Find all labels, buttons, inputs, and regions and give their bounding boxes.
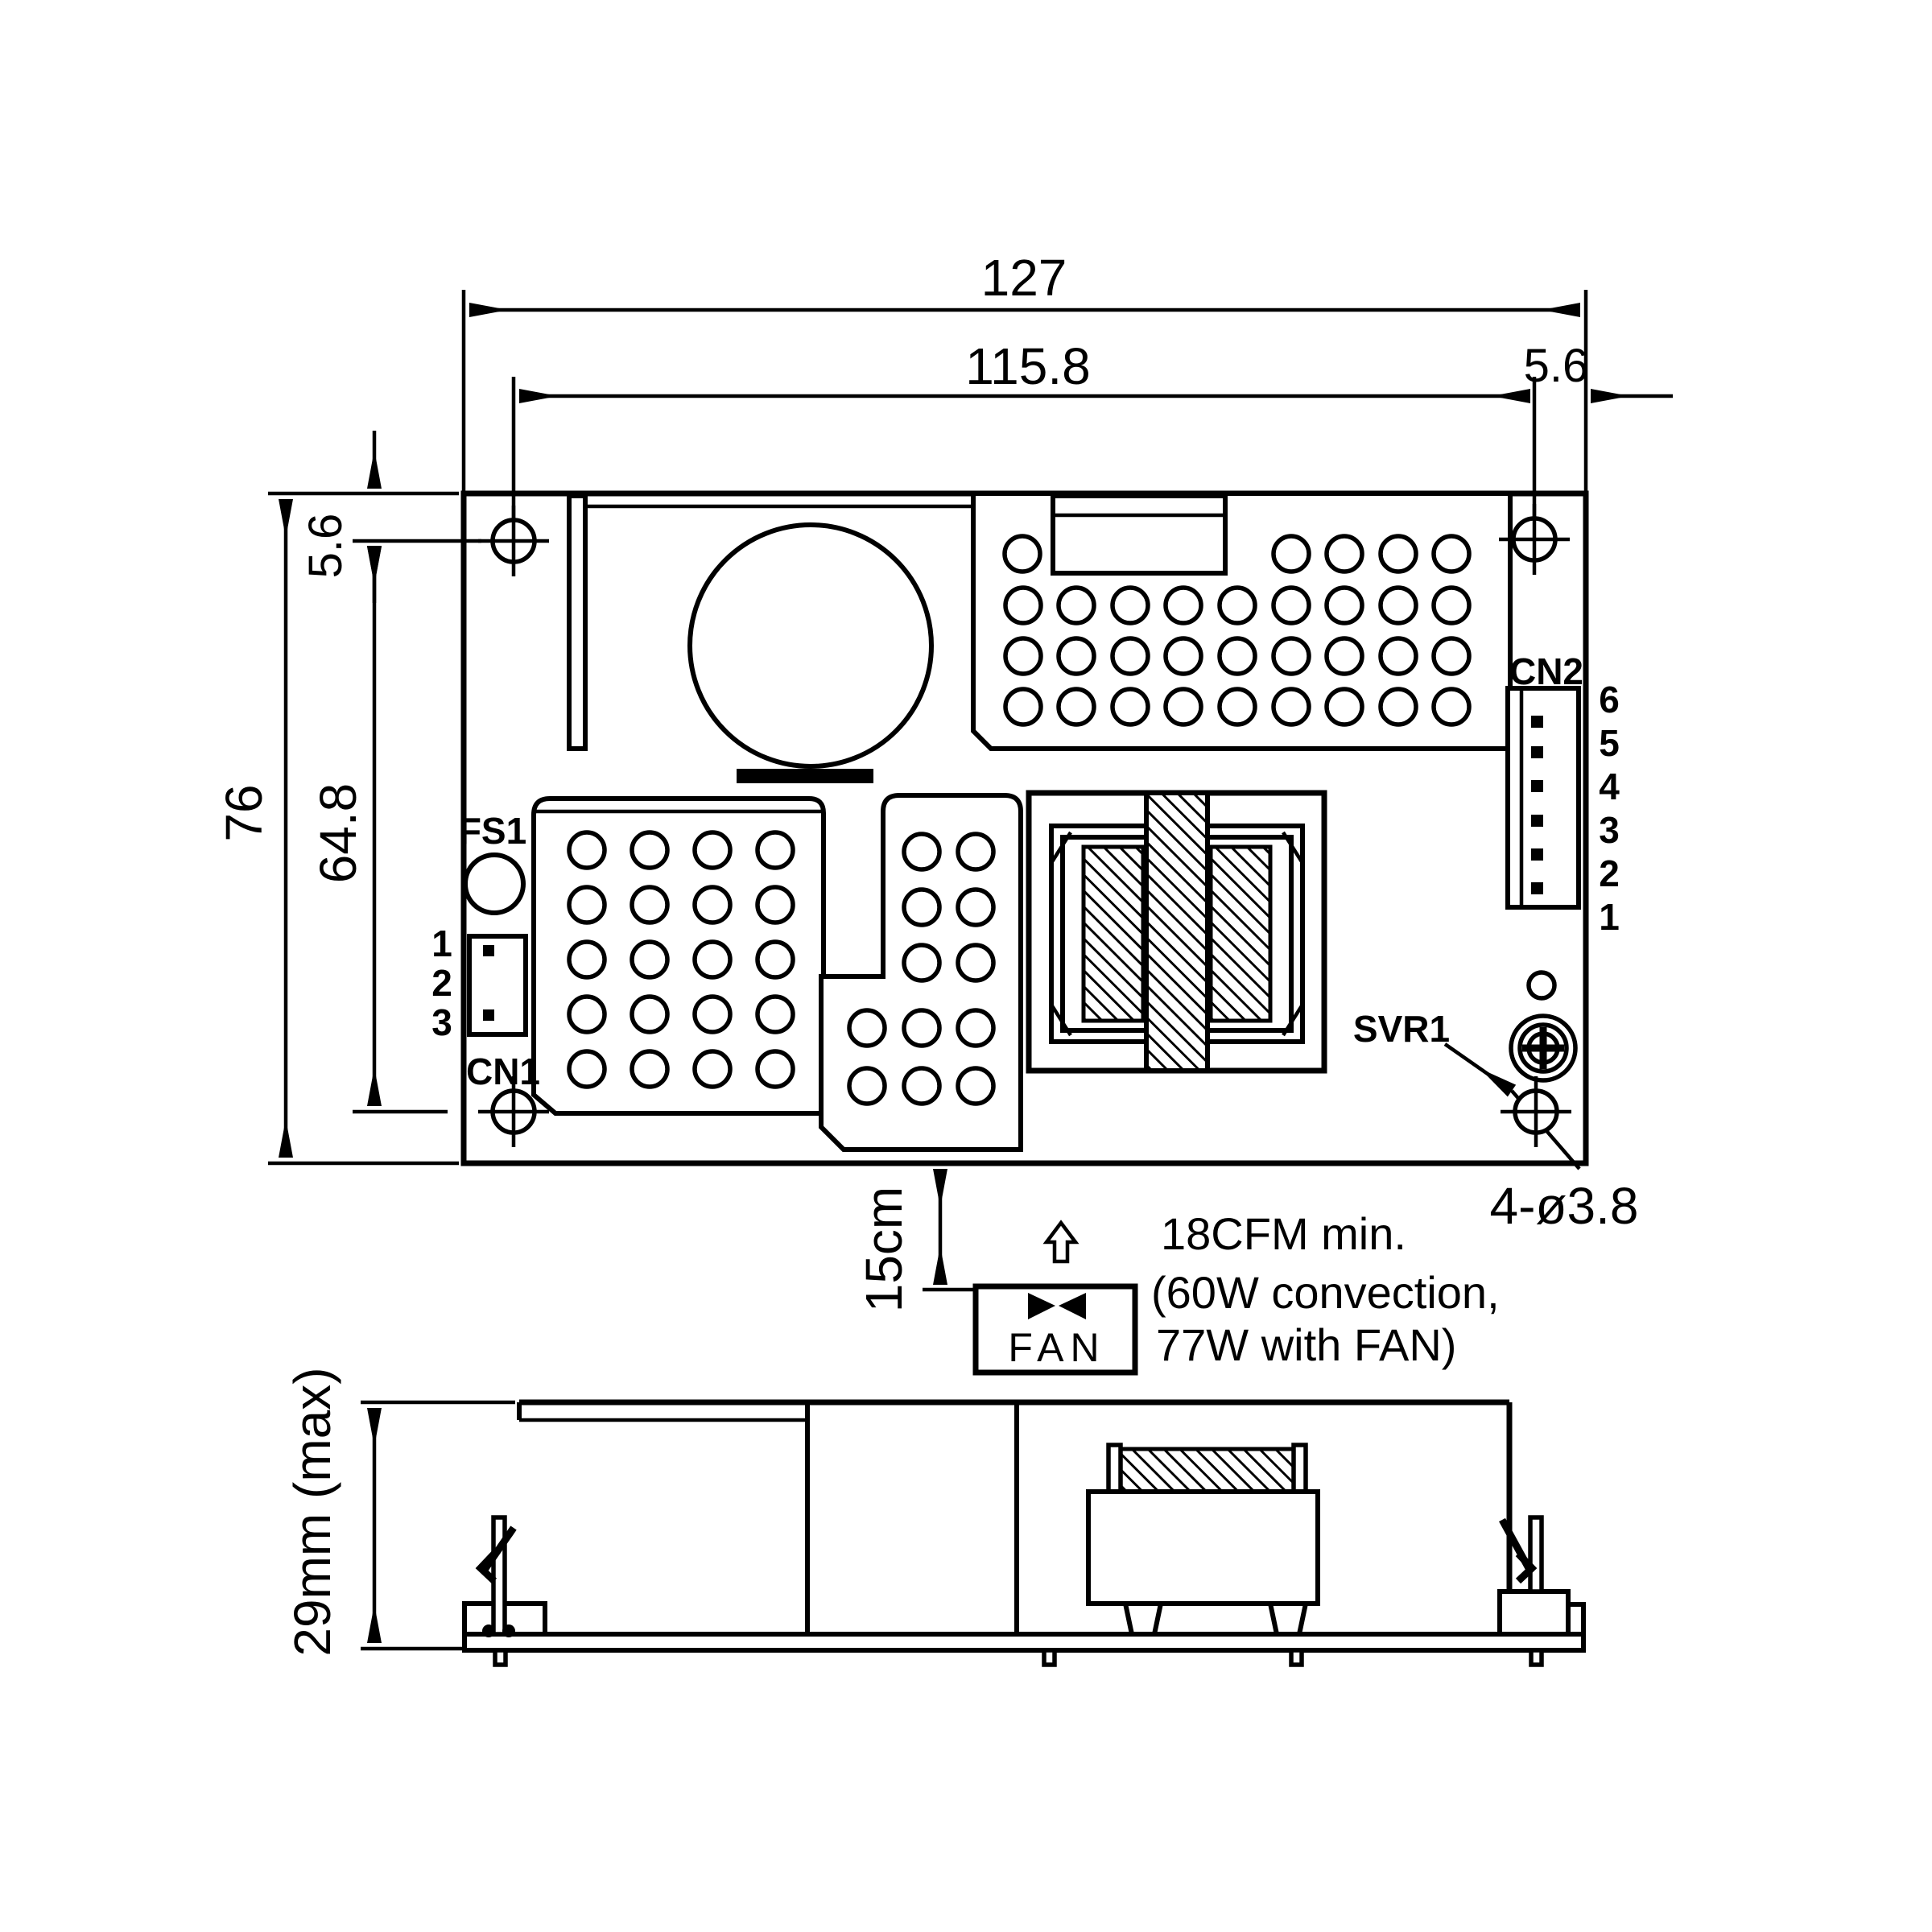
cn1-pin-number-3: 3 [431, 1001, 452, 1043]
heatsink-hole [958, 834, 993, 869]
chassis-clip-right [1500, 1517, 1583, 1634]
heatsink-hole [1220, 689, 1255, 724]
heatsink-hole [1434, 638, 1469, 674]
heatsink-hole [904, 945, 939, 980]
heatsink-hole [1274, 588, 1309, 623]
fuse-label: FS1 [459, 810, 526, 852]
heatsink-hole [1274, 536, 1309, 572]
airflow-note-line1: 18CFM min. [1161, 1208, 1406, 1259]
heatsink-hole [1005, 588, 1041, 623]
heatsink-hole [1166, 638, 1201, 674]
dimension-drawing: FS1 CN1 1 2 3 CN2 6 5 4 3 2 1 [0, 0, 1932, 1932]
transformer-side-view [1088, 1445, 1318, 1634]
heatsink-hole [904, 1068, 939, 1104]
heatsink-hole [1059, 689, 1094, 724]
heatsink-hole [1005, 689, 1041, 724]
heatsink-hole [958, 1068, 993, 1104]
airflow-note-line2: (60W convection, [1151, 1267, 1500, 1318]
dim-hole-pitch-x: 115.8 [965, 337, 1090, 395]
heatsink-hole [632, 887, 667, 923]
heatsink-hole [1327, 588, 1362, 623]
dim-edge-offset-top: 5.6 [299, 514, 352, 579]
fan-note: 15cm FAN 18CFM min. (60W convection, 77W… [855, 1169, 1500, 1373]
transformer-top-view [1029, 793, 1324, 1071]
cn1-pin1-square [483, 945, 494, 956]
heatsink-hole [1113, 638, 1148, 674]
heatsink-hole [569, 887, 605, 923]
capacitor-solder-bar [737, 769, 873, 783]
heatsink-hole [569, 997, 605, 1032]
cn2-pin-number-5: 5 [1599, 722, 1620, 764]
cn2-pin-number-2: 2 [1599, 852, 1620, 894]
heatsink-hole [849, 1010, 885, 1046]
top-view: FS1 CN1 1 2 3 CN2 6 5 4 3 2 1 [431, 493, 1620, 1169]
transformer-winding-right [1211, 847, 1270, 1021]
transformer-coil-side [1121, 1449, 1294, 1492]
cn2-pin-number-4: 4 [1599, 766, 1620, 807]
cn1-pin-number-1: 1 [431, 923, 452, 964]
heatsink-hole [1166, 588, 1201, 623]
heatsink-hole [904, 890, 939, 925]
heatsink-hole [1327, 638, 1362, 674]
heatsink-hole [758, 832, 793, 868]
side-view: 29mm (max) [283, 1367, 1583, 1665]
heatsink-hole [1434, 588, 1469, 623]
fan-label: FAN [1008, 1325, 1105, 1370]
heatsink-hole [632, 1051, 667, 1087]
heatsink-hole [1005, 536, 1040, 572]
chassis-clip-left [464, 1517, 545, 1637]
heatsink-hole [695, 997, 730, 1032]
heatsink-hole [1434, 689, 1469, 724]
drawing-canvas: FS1 CN1 1 2 3 CN2 6 5 4 3 2 1 [0, 0, 1932, 1932]
heatsink-hole [1327, 536, 1362, 572]
cn2-label: CN2 [1509, 650, 1583, 692]
heatsink-hole [1113, 689, 1148, 724]
dim-overall-height: 76 [215, 784, 273, 841]
heatsink-notch-box [1053, 496, 1225, 573]
heatsink-hole [904, 834, 939, 869]
heatsink-hole [1220, 588, 1255, 623]
heatsink-hole [958, 890, 993, 925]
heatsink-hole [958, 1010, 993, 1046]
heatsink-hole [695, 887, 730, 923]
heatsink-hole [1381, 536, 1416, 572]
shield-bracket-vertical [569, 496, 585, 749]
heatsink-hole [1005, 638, 1041, 674]
heatsink-hole [695, 832, 730, 868]
heatsink-hole [904, 1010, 939, 1046]
heatsink-hole [758, 997, 793, 1032]
heatsink-hole [1274, 689, 1309, 724]
heatsink-hole [1327, 689, 1362, 724]
heatsink-hole [1113, 588, 1148, 623]
heatsink-hole [632, 997, 667, 1032]
transformer-center-band [1146, 793, 1207, 1071]
cn1-connector [469, 936, 526, 1034]
heatsink-hole [632, 832, 667, 868]
cn1-pin-number-2: 2 [431, 962, 452, 1004]
dim-hole-pitch-y: 64.8 [309, 783, 367, 884]
heatsink-hole [569, 942, 605, 977]
transformer-winding-left [1084, 847, 1143, 1021]
heatsink-hole [569, 1051, 605, 1087]
cn2-pin-number-1: 1 [1599, 896, 1620, 938]
heatsink-hole [1220, 638, 1255, 674]
dim-fan-clearance: 15cm [855, 1187, 913, 1313]
dim-mounting-holes: 4-ø3.8 [1490, 1177, 1639, 1235]
transformer-body-side [1088, 1492, 1318, 1604]
heatsink-hole [569, 832, 605, 868]
cn1-pin3-square [483, 1009, 494, 1021]
heatsink-hole [1059, 588, 1094, 623]
heatsink-hole [758, 942, 793, 977]
heatsink-hole [695, 1051, 730, 1087]
airflow-note-line3: 77W with FAN) [1156, 1319, 1456, 1370]
heatsink-hole [1274, 638, 1309, 674]
heatsink-hole [1381, 638, 1416, 674]
heatsink-hole [1381, 689, 1416, 724]
heatsink-hole [1381, 588, 1416, 623]
pcb-side-profile [464, 1634, 1583, 1650]
svr1-small-hole [1529, 972, 1554, 998]
capacitor-circle [690, 525, 931, 766]
cn1-label: CN1 [466, 1051, 540, 1092]
airflow-up-arrow-icon [1046, 1223, 1075, 1261]
dim-overall-width: 127 [981, 249, 1067, 307]
heatsink-hole [758, 1051, 793, 1087]
fuse-circle [465, 855, 523, 913]
dim-max-height: 29mm (max) [283, 1367, 341, 1656]
heatsink-hole [1059, 638, 1094, 674]
heatsink-hole [958, 945, 993, 980]
heatsink-hole [1434, 536, 1469, 572]
heatsink-hole [632, 942, 667, 977]
dim-edge-offset-right: 5.6 [1524, 340, 1589, 392]
heatsink-hole [758, 887, 793, 923]
svr1-label: SVR1 [1353, 1008, 1450, 1050]
cn2-pin-number-3: 3 [1599, 809, 1620, 851]
cn2-pin-number-6: 6 [1599, 679, 1620, 720]
heatsink-hole [849, 1068, 885, 1104]
heatsink-hole [1166, 689, 1201, 724]
heatsink-hole [695, 942, 730, 977]
